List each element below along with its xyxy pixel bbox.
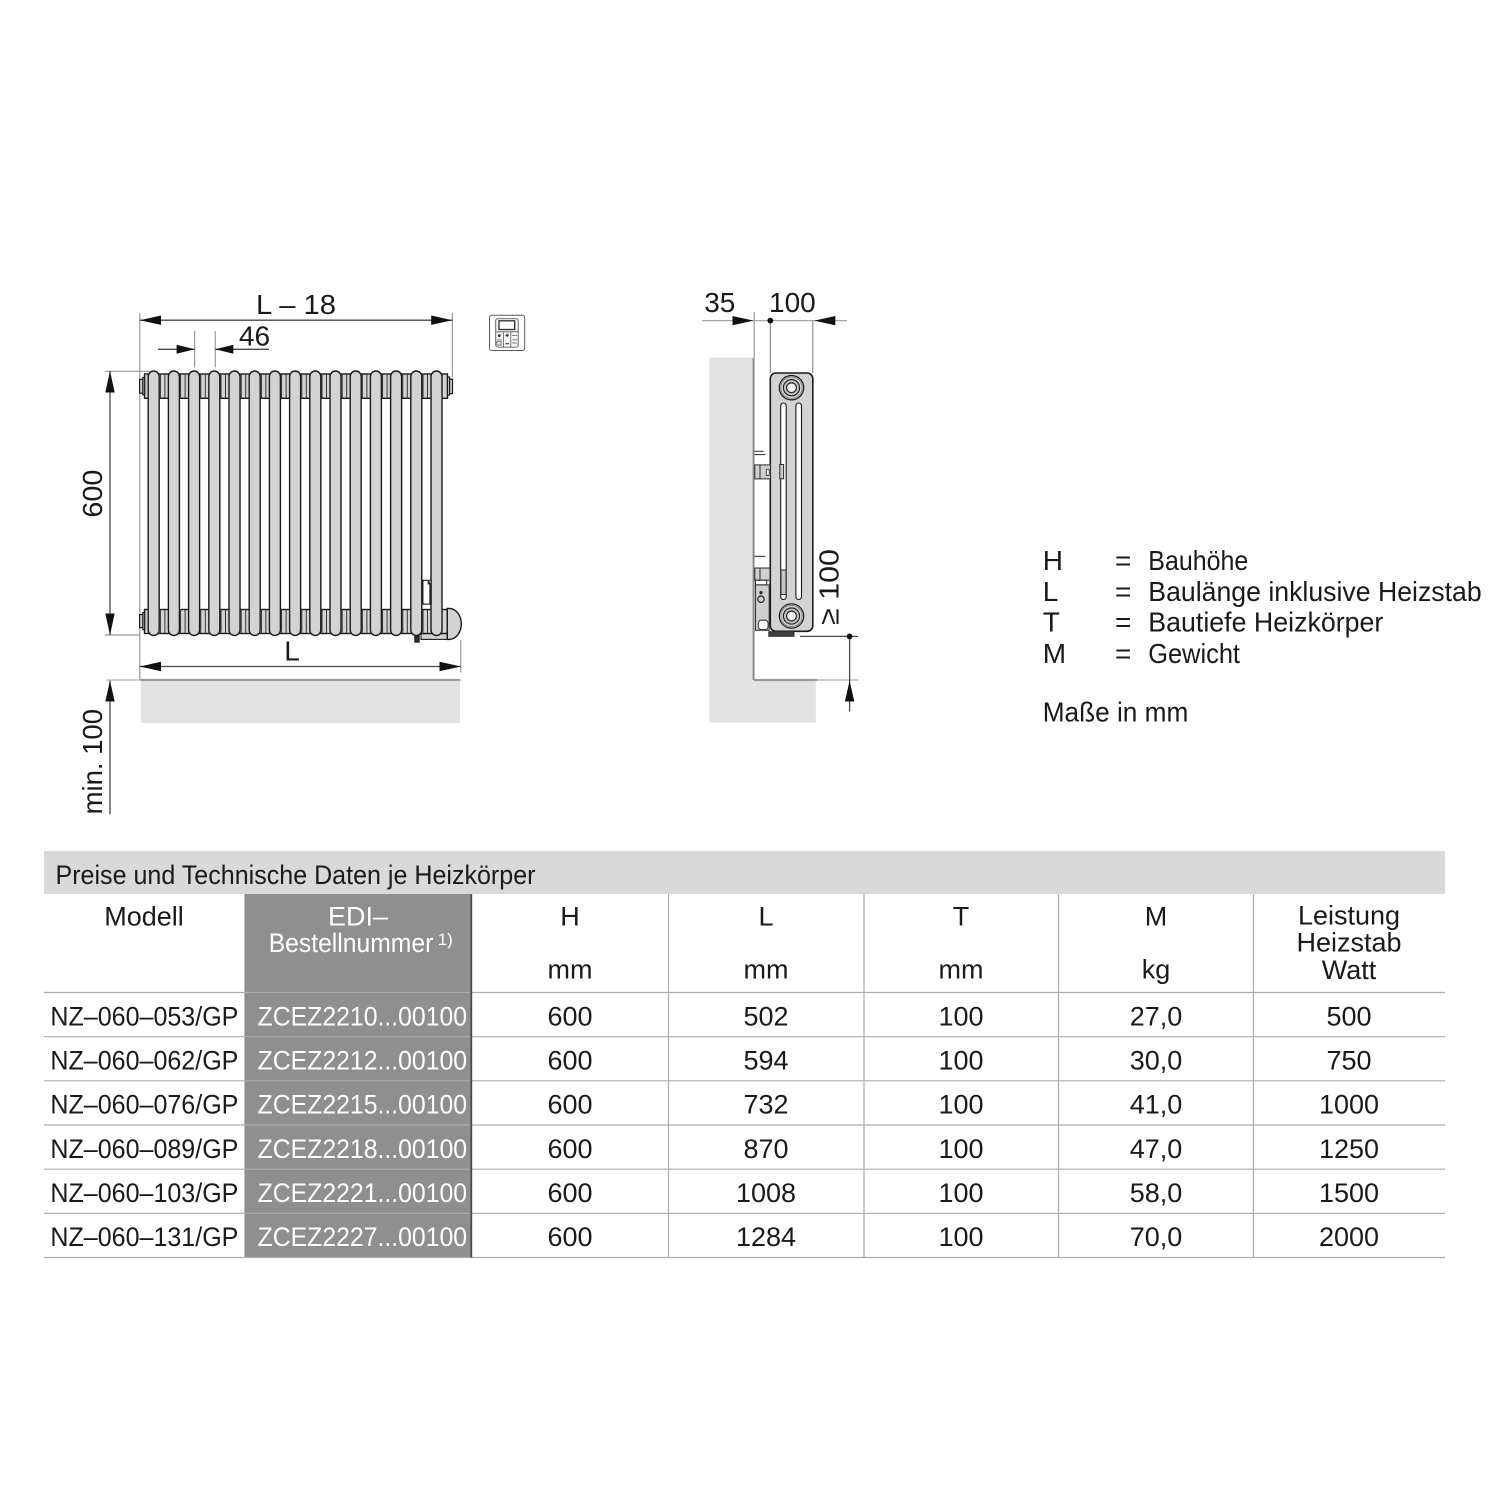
svg-text:L: L	[758, 902, 773, 932]
svg-text:100: 100	[938, 1134, 983, 1164]
svg-text:≥ 100: ≥ 100	[814, 549, 845, 625]
svg-text:502: 502	[743, 1001, 788, 1031]
svg-text:1250: 1250	[1319, 1134, 1379, 1164]
svg-text:mm: mm	[548, 955, 593, 985]
svg-text:NZ–060–053/GP: NZ–060–053/GP	[50, 1001, 238, 1031]
svg-text:594: 594	[743, 1046, 788, 1076]
svg-text:600: 600	[77, 470, 108, 518]
svg-text:Leistung: Leistung	[1298, 901, 1400, 931]
svg-text:1284: 1284	[736, 1222, 796, 1252]
svg-text:732: 732	[743, 1090, 788, 1120]
svg-text:=: =	[1115, 545, 1131, 576]
svg-text:ZCEZ2227...00100: ZCEZ2227...00100	[258, 1222, 468, 1252]
svg-text:H: H	[1043, 545, 1063, 576]
svg-text:600: 600	[547, 1178, 592, 1208]
svg-text:L: L	[1043, 576, 1059, 607]
svg-text:Modell: Modell	[104, 902, 184, 932]
svg-text:600: 600	[547, 1090, 592, 1120]
svg-text:ZCEZ2212...00100: ZCEZ2212...00100	[258, 1046, 468, 1076]
svg-text:T: T	[1043, 607, 1060, 638]
svg-text:H: H	[560, 902, 580, 932]
svg-text:mm: mm	[939, 955, 984, 985]
svg-text:100: 100	[938, 1222, 983, 1252]
svg-text:Baulänge inklusive Heizstab: Baulänge inklusive Heizstab	[1148, 576, 1481, 607]
svg-text:Bauhöhe: Bauhöhe	[1148, 545, 1248, 576]
svg-text:NZ–060–103/GP: NZ–060–103/GP	[50, 1178, 238, 1208]
svg-text:1008: 1008	[736, 1178, 796, 1208]
svg-text:600: 600	[547, 1001, 592, 1031]
svg-text:46: 46	[239, 321, 270, 352]
svg-text:1000: 1000	[1319, 1090, 1379, 1120]
svg-text:Preise und Technische Daten je: Preise und Technische Daten je Heizkörpe…	[56, 860, 536, 890]
svg-text:Bestellnummer: Bestellnummer	[269, 928, 434, 958]
svg-text:58,0: 58,0	[1130, 1178, 1183, 1208]
svg-text:Gewicht: Gewicht	[1148, 638, 1240, 669]
svg-text:Bautiefe Heizkörper: Bautiefe Heizkörper	[1148, 607, 1383, 638]
svg-text:NZ–060–062/GP: NZ–060–062/GP	[50, 1046, 238, 1076]
svg-text:30,0: 30,0	[1130, 1046, 1183, 1076]
svg-text:min. 100: min. 100	[77, 709, 108, 814]
svg-text:Watt: Watt	[1322, 955, 1377, 985]
svg-text:NZ–060–131/GP: NZ–060–131/GP	[50, 1222, 238, 1252]
svg-text:100: 100	[769, 287, 816, 318]
svg-text:600: 600	[547, 1222, 592, 1252]
svg-text:600: 600	[547, 1046, 592, 1076]
svg-text:870: 870	[743, 1134, 788, 1164]
svg-text:27,0: 27,0	[1130, 1001, 1183, 1031]
svg-text:L: L	[284, 636, 300, 667]
svg-text:M: M	[1145, 902, 1168, 932]
svg-text:mm: mm	[744, 955, 789, 985]
svg-text:35: 35	[704, 287, 735, 318]
svg-text:L – 18: L – 18	[256, 289, 336, 320]
svg-text:1500: 1500	[1319, 1178, 1379, 1208]
svg-text:41,0: 41,0	[1130, 1090, 1183, 1120]
svg-text:M: M	[1043, 638, 1066, 669]
svg-text:47,0: 47,0	[1130, 1134, 1183, 1164]
svg-text:600: 600	[547, 1134, 592, 1164]
svg-text:100: 100	[938, 1090, 983, 1120]
svg-text:EDI–: EDI–	[328, 902, 388, 932]
svg-text:Maße in mm: Maße in mm	[1043, 697, 1189, 728]
svg-text:ZCEZ2221...00100: ZCEZ2221...00100	[258, 1178, 468, 1208]
svg-text:1): 1)	[438, 930, 453, 949]
svg-text:750: 750	[1326, 1046, 1371, 1076]
svg-text:70,0: 70,0	[1130, 1222, 1183, 1252]
svg-text:500: 500	[1326, 1001, 1371, 1031]
svg-text:ZCEZ2215...00100: ZCEZ2215...00100	[258, 1090, 468, 1120]
svg-text:ZCEZ2210...00100: ZCEZ2210...00100	[258, 1001, 468, 1031]
svg-text:NZ–060–076/GP: NZ–060–076/GP	[50, 1090, 238, 1120]
svg-text:=: =	[1115, 607, 1131, 638]
svg-text:=: =	[1115, 576, 1131, 607]
svg-text:100: 100	[938, 1046, 983, 1076]
svg-text:ZCEZ2218...00100: ZCEZ2218...00100	[258, 1134, 468, 1164]
svg-text:Heizstab: Heizstab	[1296, 928, 1401, 958]
svg-text:=: =	[1115, 638, 1131, 669]
svg-text:NZ–060–089/GP: NZ–060–089/GP	[50, 1134, 238, 1164]
svg-text:2000: 2000	[1319, 1222, 1379, 1252]
svg-text:100: 100	[938, 1001, 983, 1031]
svg-text:T: T	[953, 902, 970, 932]
svg-text:kg: kg	[1142, 955, 1171, 985]
svg-text:100: 100	[938, 1178, 983, 1208]
